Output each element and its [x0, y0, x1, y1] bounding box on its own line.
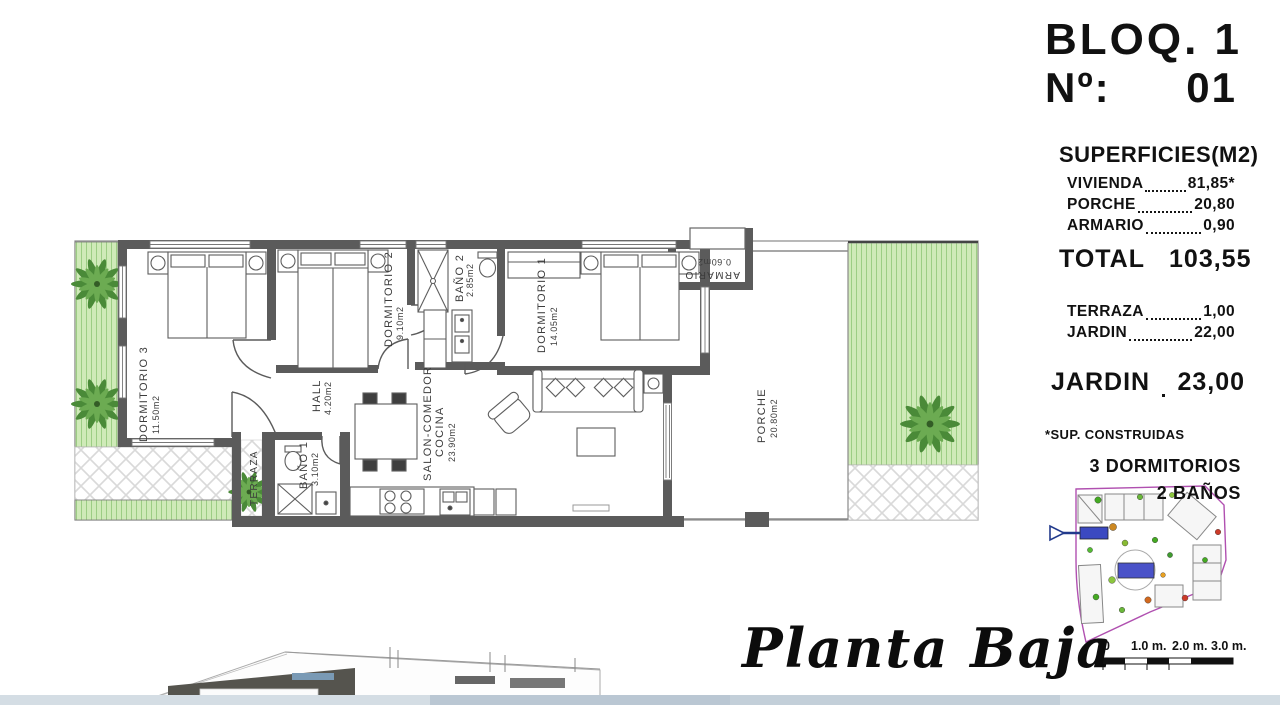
room-label-armario: ARMARIO [684, 269, 740, 280]
room-label-porche: PORCHE [756, 388, 768, 443]
surface-value: 81,85* [1188, 174, 1235, 195]
room-area-porche: 20.80m2 [769, 399, 779, 438]
surface-value: 0,90 [1203, 216, 1235, 237]
room-label-dormitorio-1: DORMITORIO 1 [536, 257, 548, 353]
dotted-leader [1145, 190, 1185, 192]
room-label-terraza: TERRAZA [249, 450, 260, 506]
surface-label: TERRAZA [1067, 302, 1144, 323]
surface-label: VIVIENDA [1067, 174, 1143, 195]
jardin-label: JARDIN [1051, 368, 1150, 397]
dotted-leader [1138, 211, 1192, 213]
surface-value: 22,00 [1194, 323, 1235, 344]
scale-bar: 0 1.0 m. 2.0 m. 3.0 m. [1103, 639, 1246, 670]
bottom-band [0, 695, 1280, 705]
footnote: *SUP. CONSTRUIDAS [1045, 427, 1245, 442]
unit-number-label: Nº: [1045, 64, 1111, 112]
surface-row: ARMARIO 0,90 [1067, 216, 1235, 237]
scale-label-3: 3.0 m. [1211, 639, 1246, 653]
jardin-total-row: JARDIN 23,00 [1051, 368, 1245, 397]
room-area-bano-1: 3.10m2 [310, 452, 320, 486]
pool [1118, 563, 1154, 578]
surface-value: 20,80 [1194, 195, 1235, 216]
dotted-leader [1146, 318, 1201, 320]
baths-count: 2 BAÑOS [1045, 483, 1245, 504]
surface-value: 1,00 [1203, 302, 1235, 323]
room-area-dormitorio-2: 9.10m2 [395, 306, 405, 340]
room-area-bano-2: 2.85m2 [465, 263, 475, 297]
bedrooms-count: 3 DORMITORIOS [1045, 456, 1245, 477]
surface-label: JARDIN [1067, 323, 1127, 344]
highlighted-unit [1080, 527, 1108, 539]
room-label-cocina: COCINA [434, 406, 446, 457]
info-sidebar: BLOQ. 1 Nº: 01 SUPERFICIES(M2) VIVIENDA … [1045, 18, 1245, 504]
floorplan-page: DORMITORIO 3 11.50m2 DORMITORIO 2 9.10m2… [0, 0, 1280, 705]
underscore-separator [1162, 376, 1165, 397]
room-area-hall: 4.20m2 [323, 381, 333, 415]
room-label-dormitorio-3: DORMITORIO 3 [138, 346, 150, 442]
dotted-leader [1129, 339, 1192, 341]
armario-vent-box [690, 228, 745, 249]
surface-label: PORCHE [1067, 195, 1136, 216]
room-area-dormitorio-3: 11.50m2 [151, 395, 161, 434]
surface-row: JARDIN 22,00 [1067, 323, 1235, 344]
scale-label-1: 1.0 m. [1131, 639, 1166, 653]
jardin-value: 23,00 [1177, 368, 1245, 397]
room-area-armario: 0.60m2 [697, 257, 731, 267]
block-title: BLOQ. 1 [1045, 18, 1245, 62]
dotted-leader [1146, 232, 1201, 234]
room-label-hall: HALL [311, 379, 323, 412]
superficies-rows: VIVIENDA 81,85* PORCHE 20,80 ARMARIO 0,9… [1067, 174, 1235, 237]
room-label-salon: SALON-COMEDOR [422, 366, 434, 481]
room-label-dormitorio-2: DORMITORIO 2 [383, 251, 395, 347]
right-garden [848, 242, 978, 520]
surface-row: VIVIENDA 81,85* [1067, 174, 1235, 195]
unit-number-row: Nº: 01 [1045, 64, 1245, 112]
room-area-salon: 23.90m2 [447, 423, 457, 462]
room-area-dormitorio-1: 14.05m2 [549, 307, 559, 346]
plan-title: Planta Baja [742, 616, 1113, 680]
surface-label: ARMARIO [1067, 216, 1144, 237]
total-row: TOTAL 103,55 [1059, 245, 1245, 274]
exterior-rows: TERRAZA 1,00 JARDIN 22,00 [1067, 302, 1235, 344]
total-value: 103,55 [1169, 245, 1251, 274]
room-label-bano-1: BAÑO 1 [297, 441, 310, 489]
surface-row: PORCHE 20,80 [1067, 195, 1235, 216]
surface-row: TERRAZA 1,00 [1067, 302, 1235, 323]
total-label: TOTAL [1059, 245, 1145, 274]
superficies-title: SUPERFICIES(M2) [1059, 142, 1245, 168]
unit-number-value: 01 [1186, 64, 1237, 112]
scale-label-2: 2.0 m. [1172, 639, 1207, 653]
